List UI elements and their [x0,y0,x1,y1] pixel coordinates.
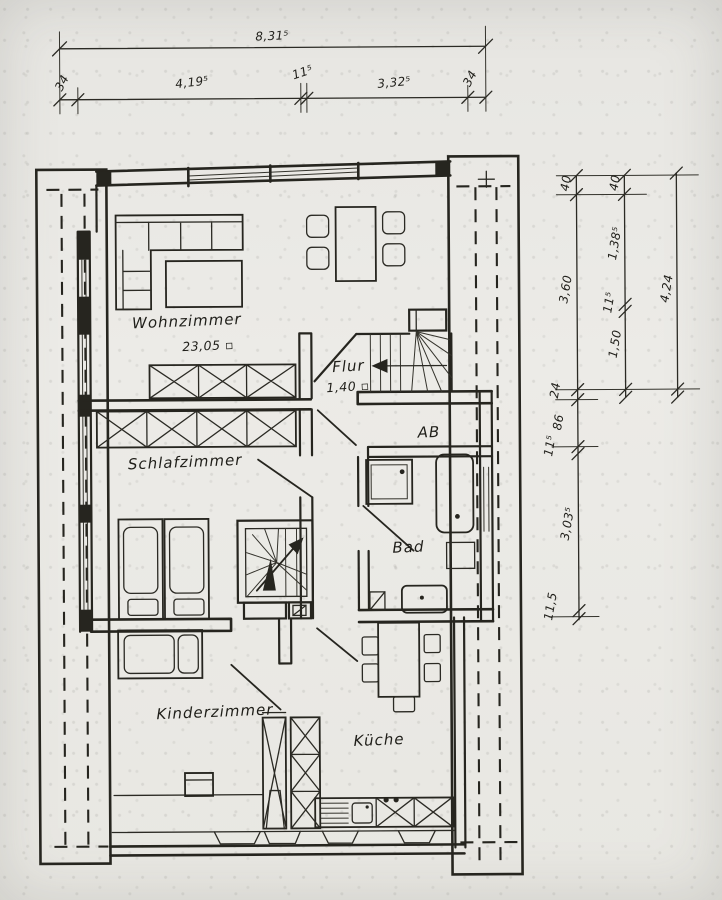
kitchen-table-group [362,623,441,712]
bath-shaft [370,592,385,610]
dim-b-1385: 1,38⁵ [605,226,624,261]
main-staircase [356,309,451,392]
dim-b-150: 1,50 [606,329,625,359]
dim-a-24: 24 [547,381,563,399]
stove-burner-lines [320,803,348,823]
dim-seg1: 4,19⁵ [175,73,210,91]
ironing-board [266,790,284,828]
dim-seg2: 3,32⁵ [377,74,412,91]
dim-a-40: 40 [558,174,574,192]
dim-b-40: 40 [607,174,623,192]
room-area-wohnzimmer: 23,05 ▫ [182,337,234,354]
child-bed [118,630,202,679]
dim-total-width: 8,31⁵ [255,28,289,43]
kitchen-sink [352,803,372,823]
ab-door-leaf [318,410,356,445]
dim-a-115: 11⁵ [541,434,558,457]
dim-a-360: 3,60 [556,274,575,304]
room-label-flur: Flur [332,356,365,376]
shower [366,460,412,504]
sofa [116,215,244,310]
wardrobe-living-side [149,364,295,398]
schlafzimmer-door-leaf [258,459,312,497]
left-roof-overhang [36,170,110,864]
room-label-bad: Bad [392,538,425,557]
wardrobe-bedroom-side [97,410,296,447]
scanned-floor-plan-page: 8,31⁵ 34 4,19⁵ 11⁵ 3,32⁵ 34 40 40 3,60 1… [0,0,722,900]
room-label-schlafzimmer: Schlafzimmer [128,451,243,474]
faucet [384,797,389,802]
stair-down-arrow [371,359,387,373]
dim-b-115: 11⁵ [600,291,617,314]
child-table [185,773,213,796]
coffee-table [166,261,242,307]
floor-plan-drawing: 8,31⁵ 34 4,19⁵ 11⁵ 3,32⁵ 34 40 40 3,60 1… [0,0,722,900]
dim-a-86: 86 [550,413,566,431]
dining-table-group [307,207,405,282]
kueche-door-leaf [317,628,357,661]
top-dimension-chain: 8,31⁵ 34 4,19⁵ 11⁵ 3,32⁵ 34 [52,26,493,114]
dim-left-offset: 34 [52,72,72,93]
room-width-flur: 1,40 ▫ [326,378,370,396]
bathtub [436,454,473,532]
room-label-wohnzimmer: Wohnzimmer [132,310,242,332]
room-label-ab: AB [416,423,440,442]
dim-c-424: 4,24 [657,273,676,303]
dim-a-3035: 3,03⁵ [558,506,577,541]
dim-mid: 11⁵ [290,62,315,82]
room-label-kinderzimmer: Kinderzimmer [156,700,274,723]
right-dimension-chains: 40 40 3,60 1,38⁵ 11⁵ 1,50 4,24 24 86 11⁵… [538,167,701,625]
dim-right-offset: 34 [460,68,480,89]
twin-beds [118,519,209,620]
divider-cabinets [263,712,321,828]
kitchen-counter [315,797,454,827]
room-label-kueche: Küche [353,730,405,750]
